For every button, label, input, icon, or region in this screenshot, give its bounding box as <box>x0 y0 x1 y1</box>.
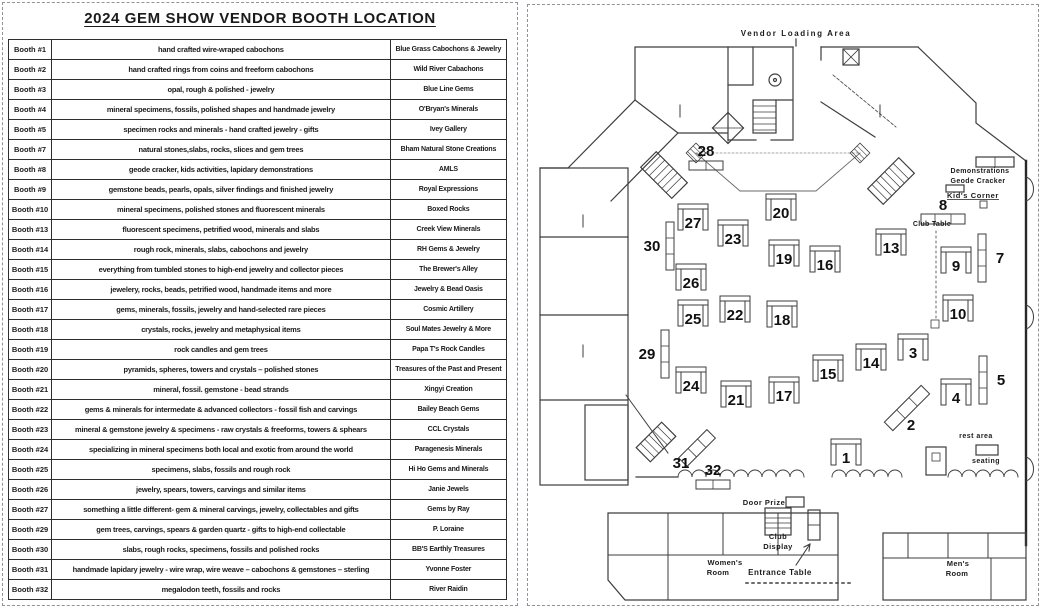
door-prize-box <box>786 497 804 507</box>
booth-marker-20: 20 <box>766 194 796 222</box>
booth-marker-30: 30 <box>644 222 674 270</box>
booth-cell: Booth #14 <box>9 240 52 260</box>
table-row: Booth #7natural stones,slabs, rocks, sli… <box>9 140 507 160</box>
map-label-seating: seating <box>972 458 1000 465</box>
vendor-cell: River Raidin <box>390 580 506 600</box>
booth-marker-18: 18 <box>767 301 797 329</box>
table-row: Booth #26jewelry, spears, towers, carvin… <box>9 480 507 500</box>
booth-marker-17: 17 <box>769 377 799 405</box>
table-row: Booth #23mineral & gemstone jewelry & sp… <box>9 420 507 440</box>
table-row: Booth #31handmade lapidary jewelry - wir… <box>9 560 507 580</box>
booth-number-23: 23 <box>725 231 742 248</box>
vendor-booth-table: Booth #1hand crafted wire-wraped cabocho… <box>8 39 507 600</box>
booth-cell: Booth #2 <box>9 60 52 80</box>
booth-number-22: 22 <box>727 307 744 324</box>
table-row: Booth #32megalodon teeth, fossils and ro… <box>9 580 507 600</box>
table-row: Booth #10mineral specimens, polished sto… <box>9 200 507 220</box>
booth-number-3: 3 <box>909 345 917 362</box>
booth-marker-16: 16 <box>810 246 840 274</box>
description-cell: handmade lapidary jewelry - wire wrap, w… <box>52 560 391 580</box>
booth-cell: Booth #19 <box>9 340 52 360</box>
description-cell: specimen rocks and minerals - hand craft… <box>52 120 391 140</box>
description-cell: specimens, slabs, fossils and rough rock <box>52 460 391 480</box>
vendor-cell: CCL Crystals <box>390 420 506 440</box>
booth-number-16: 16 <box>817 257 834 274</box>
booth-cell: Booth #7 <box>9 140 52 160</box>
stairs-northwest <box>641 152 688 199</box>
map-label-demonstrations: Demonstrations <box>951 168 1010 175</box>
map-label-rest-area: rest area <box>959 433 993 440</box>
map-label-geode-cracker: Geode Cracker <box>950 178 1005 185</box>
booth-number-17: 17 <box>776 388 793 405</box>
table-row: Booth #16jewelery, rocks, beads, petrifi… <box>9 280 507 300</box>
booth-cell: Booth #4 <box>9 100 52 120</box>
map-label-womens-room-line2: Room <box>707 568 729 577</box>
description-cell: slabs, rough rocks, specimens, fossils a… <box>52 540 391 560</box>
booth-marker-23: 23 <box>718 220 748 248</box>
booth-number-30: 30 <box>644 238 661 255</box>
booth-cell: Booth #29 <box>9 520 52 540</box>
table-row: Booth #17gems, minerals, fossils, jewelr… <box>9 300 507 320</box>
booth-marker-10: 10 <box>943 295 973 323</box>
table-row: Booth #30slabs, rough rocks, specimens, … <box>9 540 507 560</box>
booth-cell: Booth #16 <box>9 280 52 300</box>
booth-cell: Booth #1 <box>9 40 52 60</box>
description-cell: geode cracker, kids activities, lapidary… <box>52 160 391 180</box>
booth-marker-22: 22 <box>720 296 750 324</box>
table-row: Booth #2hand crafted rings from coins an… <box>9 60 507 80</box>
description-cell: gem trees, carvings, spears & garden qua… <box>52 520 391 540</box>
rest-area-table <box>976 445 998 455</box>
stairs-northeast <box>868 158 915 205</box>
booth-marker-27: 27 <box>678 204 708 232</box>
description-cell: something a little different- gem & mine… <box>52 500 391 520</box>
vendor-cell: Soul Mates Jewelry & More <box>390 320 506 340</box>
booth-cell: Booth #15 <box>9 260 52 280</box>
gem-show-document: 2024 GEM SHOW VENDOR BOOTH LOCATION Boot… <box>0 0 1041 609</box>
booth-number-24: 24 <box>683 378 700 395</box>
description-cell: everything from tumbled stones to high-e… <box>52 260 391 280</box>
vendor-cell: AMLS <box>390 160 506 180</box>
table-row: Booth #3opal, rough & polished - jewelry… <box>9 80 507 100</box>
booth-cell: Booth #27 <box>9 500 52 520</box>
description-cell: hand crafted wire-wraped cabochons <box>52 40 391 60</box>
vendor-cell: Blue Grass Cabochons & Jewelry <box>390 40 506 60</box>
floor-plan-panel: 2830292726252423222120191817161514139107… <box>527 4 1039 606</box>
vendor-cell: Wild River Cabachons <box>390 60 506 80</box>
booth-number-10: 10 <box>950 306 967 323</box>
booth-marker-24: 24 <box>676 367 706 395</box>
booth-cell: Booth #30 <box>9 540 52 560</box>
booth-cell: Booth #13 <box>9 220 52 240</box>
table-row: Booth #1hand crafted wire-wraped cabocho… <box>9 40 507 60</box>
description-cell: mineral specimens, polished stones and f… <box>52 200 391 220</box>
booth-marker-15: 15 <box>813 355 843 383</box>
table-row: Booth #25specimens, slabs, fossils and r… <box>9 460 507 480</box>
table-row: Booth #19rock candles and gem treesPapa … <box>9 340 507 360</box>
booth-number-5: 5 <box>997 372 1005 389</box>
vendor-cell: Papa T's Rock Candles <box>390 340 506 360</box>
booth-number-28: 28 <box>698 143 715 160</box>
booth-number-19: 19 <box>776 251 793 268</box>
booth-marker-13: 13 <box>876 229 906 257</box>
table-row: Booth #9gemstone beads, pearls, opals, s… <box>9 180 507 200</box>
map-label-club-display-line1: Club <box>769 532 787 541</box>
table-row: Booth #27something a little different- g… <box>9 500 507 520</box>
table-row: Booth #18crystals, rocks, jewelry and me… <box>9 320 507 340</box>
vendor-table-panel: 2024 GEM SHOW VENDOR BOOTH LOCATION Boot… <box>2 2 518 606</box>
vendor-cell: Janie Jewels <box>390 480 506 500</box>
vendor-cell: Boxed Rocks <box>390 200 506 220</box>
booth-number-14: 14 <box>863 355 880 372</box>
table-row: Booth #24specializing in mineral specime… <box>9 440 507 460</box>
map-label-womens-room-line1: Women's <box>707 558 742 567</box>
booth-cell: Booth #22 <box>9 400 52 420</box>
map-label-mens-room-line2: Room <box>946 569 968 578</box>
vendor-cell: O'Bryan's Minerals <box>390 100 506 120</box>
booth-number-2: 2 <box>907 417 915 434</box>
booth-cell: Booth #10 <box>9 200 52 220</box>
booth-number-25: 25 <box>685 311 702 328</box>
booth-cell: Booth #18 <box>9 320 52 340</box>
vendor-cell: The Brewer's Alley <box>390 260 506 280</box>
booth-cell: Booth #32 <box>9 580 52 600</box>
table-row: Booth #13fluorescent specimens, petrifie… <box>9 220 507 240</box>
description-cell: hand crafted rings from coins and freefo… <box>52 60 391 80</box>
vendor-cell: Yvonne Foster <box>390 560 506 580</box>
booth-number-29: 29 <box>639 346 656 363</box>
booth-number-4: 4 <box>952 390 961 407</box>
booth-number-31: 31 <box>673 455 690 472</box>
stairs-southwest <box>636 422 676 462</box>
booth-marker-14: 14 <box>856 344 886 372</box>
description-cell: gemstone beads, pearls, opals, silver fi… <box>52 180 391 200</box>
map-label-door-prize: Door Prize <box>743 498 786 507</box>
description-cell: pyramids, spheres, towers and crystals –… <box>52 360 391 380</box>
booth-cell: Booth #23 <box>9 420 52 440</box>
booth-cell: Booth #26 <box>9 480 52 500</box>
table-row: Booth #8geode cracker, kids activities, … <box>9 160 507 180</box>
booth-marker-1: 1 <box>831 439 861 467</box>
booth-number-27: 27 <box>685 215 702 232</box>
booth-marker-32: 32 <box>696 462 730 489</box>
booth-marker-9: 9 <box>941 247 971 275</box>
description-cell: mineral specimens, fossils, polished sha… <box>52 100 391 120</box>
booth-marker-21: 21 <box>721 381 751 409</box>
page-title: 2024 GEM SHOW VENDOR BOOTH LOCATION <box>3 10 517 27</box>
description-cell: gems & minerals for intermedate & advanc… <box>52 400 391 420</box>
booth-number-13: 13 <box>883 240 900 257</box>
booth-marker-4: 4 <box>941 379 971 407</box>
booth-marker-25: 25 <box>678 300 708 328</box>
booth-number-32: 32 <box>705 462 722 479</box>
map-label-club-table: Club Table <box>913 221 951 228</box>
map-label-mens-room-line1: Men's <box>947 559 969 568</box>
booth-marker-7: 7 <box>978 234 1004 282</box>
booth-cell: Booth #9 <box>9 180 52 200</box>
description-cell: mineral, fossil. gemstone - bead strands <box>52 380 391 400</box>
booth-table-body: Booth #1hand crafted wire-wraped cabocho… <box>9 40 507 600</box>
booth-cell: Booth #31 <box>9 560 52 580</box>
booth-cell: Booth #3 <box>9 80 52 100</box>
table-row: Booth #20pyramids, spheres, towers and c… <box>9 360 507 380</box>
vendor-cell: Jewelry & Bead Oasis <box>390 280 506 300</box>
vendor-cell: Royal Expressions <box>390 180 506 200</box>
description-cell: gems, minerals, fossils, jewelry and han… <box>52 300 391 320</box>
elevator-box <box>712 112 743 143</box>
vendor-cell: Creek View Minerals <box>390 220 506 240</box>
booth-number-18: 18 <box>774 312 791 329</box>
table-row: Booth #29gem trees, carvings, spears & g… <box>9 520 507 540</box>
vendor-cell: Cosmic Artillery <box>390 300 506 320</box>
vendor-cell: Blue Line Gems <box>390 80 506 100</box>
description-cell: crystals, rocks, jewelry and metaphysica… <box>52 320 391 340</box>
vendor-cell: P. Loraine <box>390 520 506 540</box>
description-cell: rock candles and gem trees <box>52 340 391 360</box>
vendor-cell: Gems by Ray <box>390 500 506 520</box>
map-labels: Vendor Loading AreaDemonstrationsGeode C… <box>707 29 1010 578</box>
booth-marker-29: 29 <box>639 330 669 378</box>
booth-number-26: 26 <box>683 275 700 292</box>
booth-cell: Booth #5 <box>9 120 52 140</box>
table-row: Booth #5specimen rocks and minerals - ha… <box>9 120 507 140</box>
description-cell: fluorescent specimens, petrified wood, m… <box>52 220 391 240</box>
booth-marker-2: 2 <box>884 385 929 434</box>
description-cell: jewelry, spears, towers, carvings and si… <box>52 480 391 500</box>
booth-number-15: 15 <box>820 366 837 383</box>
table-row: Booth #22gems & minerals for intermedate… <box>9 400 507 420</box>
map-label-kids-corner: Kid's Corner <box>947 191 999 200</box>
description-cell: opal, rough & polished - jewelry <box>52 80 391 100</box>
booth-cell: Booth #21 <box>9 380 52 400</box>
table-row: Booth #21mineral, fossil. gemstone - bea… <box>9 380 507 400</box>
description-cell: jewelery, rocks, beads, petrified wood, … <box>52 280 391 300</box>
table-row: Booth #14rough rock, minerals, slabs, ca… <box>9 240 507 260</box>
booth-marker-3: 3 <box>898 334 928 362</box>
booth-cell: Booth #8 <box>9 160 52 180</box>
vendor-cell: Paragenesis Minerals <box>390 440 506 460</box>
floor-plan-svg: 2830292726252423222120191817161514139107… <box>528 5 1038 605</box>
vendor-cell: Hi Ho Gems and Minerals <box>390 460 506 480</box>
booth-marker-19: 19 <box>769 240 799 268</box>
booth-cell: Booth #20 <box>9 360 52 380</box>
booth-number-21: 21 <box>728 392 745 409</box>
vendor-cell: Treasures of the Past and Present <box>390 360 506 380</box>
map-label-entrance-table: Entrance Table <box>748 568 812 577</box>
table-row: Booth #15everything from tumbled stones … <box>9 260 507 280</box>
description-cell: megalodon teeth, fossils and rocks <box>52 580 391 600</box>
vendor-cell: Bham Natural Stone Creations <box>390 140 506 160</box>
description-cell: mineral & gemstone jewelry & specimens -… <box>52 420 391 440</box>
booth-marker-26: 26 <box>676 264 706 292</box>
booth-cell: Booth #17 <box>9 300 52 320</box>
booth-number-9: 9 <box>952 258 960 275</box>
table-row: Booth #4mineral specimens, fossils, poli… <box>9 100 507 120</box>
booth-number-1: 1 <box>842 450 850 467</box>
vendor-cell: BB'S Earthly Treasures <box>390 540 506 560</box>
vendor-cell: Ivey Gallery <box>390 120 506 140</box>
vendor-cell: RH Gems & Jewelry <box>390 240 506 260</box>
booth-cell: Booth #24 <box>9 440 52 460</box>
booth-number-8: 8 <box>939 197 947 214</box>
booth-marker-8: 8 <box>921 197 965 224</box>
description-cell: natural stones,slabs, rocks, slices and … <box>52 140 391 160</box>
booth-cell: Booth #25 <box>9 460 52 480</box>
map-label-vendor-loading-area: Vendor Loading Area <box>741 29 852 38</box>
booth-number-20: 20 <box>773 205 790 222</box>
description-cell: rough rock, minerals, slabs, cabochons a… <box>52 240 391 260</box>
booth-number-7: 7 <box>996 250 1004 267</box>
vendor-cell: Bailey Beach Gems <box>390 400 506 420</box>
map-label-club-display-line2: Display <box>763 542 793 551</box>
vendor-cell: Xingyi Creation <box>390 380 506 400</box>
booth-marker-5: 5 <box>979 356 1005 404</box>
description-cell: specializing in mineral specimens both l… <box>52 440 391 460</box>
